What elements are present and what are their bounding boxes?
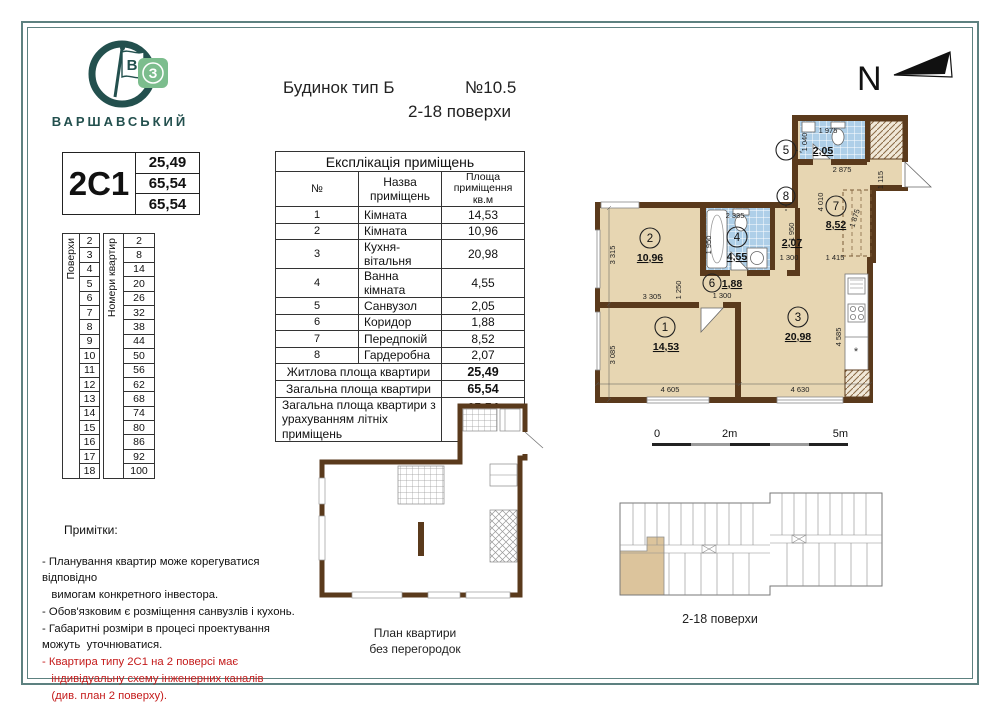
note-line: індивідуальну схему інженерних каналів bbox=[42, 671, 304, 688]
scale-five: 5m bbox=[833, 428, 848, 440]
table-row: 11 bbox=[80, 363, 99, 377]
table-row: 4 bbox=[80, 262, 99, 276]
room-area: 2,05 bbox=[442, 298, 525, 315]
apartment-number: 62 bbox=[124, 377, 154, 391]
scale-two: 2m bbox=[722, 428, 737, 440]
kitchen-shaft bbox=[845, 370, 870, 397]
fridge-symbol: * bbox=[854, 346, 859, 358]
caption-line: без перегородок bbox=[330, 641, 500, 657]
room-number: 4 bbox=[276, 269, 359, 298]
table-row: 18 bbox=[80, 464, 99, 478]
vent-shaft bbox=[870, 121, 903, 159]
explication-row: 8 Гардеробна 2,07 bbox=[276, 347, 525, 364]
table-row: 2 bbox=[124, 234, 154, 248]
table-row: 68 bbox=[124, 392, 154, 406]
dim-label: 1 415 bbox=[826, 253, 845, 262]
explication-row: 3 Кухня-вітальня 20,98 bbox=[276, 240, 525, 269]
table-row: 12 bbox=[80, 377, 99, 391]
explication-title: Експлікація приміщень bbox=[276, 152, 525, 172]
summary-label: Загальна площа квартири bbox=[276, 381, 442, 398]
note-line: відповідно bbox=[42, 570, 304, 587]
room-area: 20,98 bbox=[442, 240, 525, 269]
apartment-number: 14 bbox=[124, 262, 154, 276]
apartment-number: 20 bbox=[124, 277, 154, 291]
dim-label: 1 300 bbox=[780, 253, 799, 262]
brand-logo-icon: В З bbox=[78, 36, 188, 114]
building-type: Будинок тип Б bbox=[283, 78, 395, 98]
summary-value: 65,54 bbox=[442, 381, 525, 398]
building-overview-plan bbox=[607, 487, 963, 609]
scale-bar: 0 2m 5m bbox=[652, 428, 848, 450]
highlighted-apartment bbox=[620, 537, 664, 595]
dim-label: 3 085 bbox=[608, 346, 617, 365]
note-line: - Габаритні розміри в процесі проектуван… bbox=[42, 621, 304, 638]
room-area: 10,96 bbox=[442, 223, 525, 240]
explication-row: 7 Передпокій 8,52 bbox=[276, 331, 525, 348]
dim-label: 3 315 bbox=[608, 246, 617, 265]
apartment-numbers-label: Номери квартир bbox=[106, 238, 119, 317]
floor-number: 11 bbox=[80, 363, 99, 377]
dim-label: 1 950 bbox=[704, 236, 713, 255]
floor-number: 12 bbox=[80, 377, 99, 391]
plan-no-partitions-caption: План квартири без перегородок bbox=[330, 625, 500, 657]
room-name: Передпокій bbox=[359, 331, 442, 348]
floor-plan: * bbox=[595, 112, 940, 412]
table-row: 13 bbox=[80, 392, 99, 406]
floor-number: 13 bbox=[80, 392, 99, 406]
room-number: 7 bbox=[276, 331, 359, 348]
col-header-area-l3: кв.м bbox=[444, 195, 522, 206]
apartment-card-value: 65,54 bbox=[136, 194, 199, 214]
room-name: Кімната bbox=[359, 223, 442, 240]
floor-number: 15 bbox=[80, 421, 99, 435]
table-row: 20 bbox=[124, 277, 154, 291]
apartment-card: 2С1 25,4965,5465,54 bbox=[62, 152, 200, 215]
room-3-area: 20,98 bbox=[785, 331, 811, 343]
table-row: 44 bbox=[124, 334, 154, 348]
dim-label: 2 335 bbox=[726, 211, 745, 220]
apartment-numbers-table: Номери квартир 2814202632384450566268748… bbox=[103, 233, 155, 479]
north-label: N bbox=[857, 60, 882, 98]
floor-number: 6 bbox=[80, 291, 99, 305]
room-name: Кухня-вітальня bbox=[359, 240, 442, 269]
apartment-number: 86 bbox=[124, 435, 154, 449]
table-row: 26 bbox=[124, 291, 154, 305]
dim-label: 1 040 bbox=[800, 133, 809, 152]
room-3-number: 3 bbox=[795, 312, 801, 324]
apartment-number: 44 bbox=[124, 334, 154, 348]
plan-sheet: В З ВАРШАВСЬКИЙ Будинок тип Б №10.5 2-18… bbox=[0, 0, 1000, 706]
floor-number: 5 bbox=[80, 277, 99, 291]
room-name: Коридор bbox=[359, 314, 442, 331]
dim-label: 1 115 bbox=[876, 171, 885, 189]
room-area: 1,88 bbox=[442, 314, 525, 331]
floors-table-label-cell: Поверхи bbox=[63, 234, 80, 478]
table-row: 50 bbox=[124, 349, 154, 363]
room-4-number: 4 bbox=[734, 232, 741, 244]
building-number: №10.5 bbox=[465, 78, 516, 98]
table-row: 6 bbox=[80, 291, 99, 305]
apartment-number: 68 bbox=[124, 392, 154, 406]
north-arrow-icon: N bbox=[855, 42, 960, 104]
dim-label: 4 605 bbox=[661, 385, 680, 394]
room-4-area: 4,55 bbox=[727, 251, 748, 263]
floor-number: 9 bbox=[80, 334, 99, 348]
table-row: 100 bbox=[124, 464, 154, 478]
apartment-number: 56 bbox=[124, 363, 154, 377]
note-line: - Квартира типу 2С1 на 2 поверсі має bbox=[42, 654, 304, 671]
room-8-number: 8 bbox=[783, 191, 789, 203]
logo-letter-z: З bbox=[149, 65, 158, 81]
table-row: 62 bbox=[124, 377, 154, 391]
table-row: 10 bbox=[80, 349, 99, 363]
floor-number: 2 bbox=[80, 234, 99, 248]
note-line: (див. план 2 поверху). bbox=[42, 688, 304, 705]
dim-label: 4 585 bbox=[834, 328, 843, 347]
floors-range: 2-18 поверхи bbox=[408, 102, 511, 122]
logo-letter-b: В bbox=[127, 57, 138, 74]
table-row: 9 bbox=[80, 334, 99, 348]
floor-number: 16 bbox=[80, 435, 99, 449]
explication-summary-row: Житлова площа квартири 25,49 bbox=[276, 364, 525, 381]
col-header-name: Назва приміщень bbox=[359, 172, 442, 207]
floor-number: 17 bbox=[80, 449, 99, 463]
note-line: можуть уточнюватися. bbox=[42, 637, 304, 654]
apartment-numbers-label-cell: Номери квартир bbox=[104, 234, 124, 478]
table-row: 16 bbox=[80, 435, 99, 449]
apartment-card-values: 25,4965,5465,54 bbox=[136, 153, 199, 214]
dim-label: 4 010 bbox=[816, 193, 825, 212]
explication-row: 5 Санвузол 2,05 bbox=[276, 298, 525, 315]
floors-table: Поверхи 23456789101112131415161718 bbox=[62, 233, 100, 479]
table-row: 14 bbox=[124, 262, 154, 276]
explication-row: 6 Коридор 1,88 bbox=[276, 314, 525, 331]
notes: Примітки: - Планування квартир може коре… bbox=[42, 522, 304, 704]
explication-table: Експлікація приміщень № Назва приміщень … bbox=[275, 151, 525, 442]
room-1-area: 14,53 bbox=[653, 341, 679, 353]
table-row: 7 bbox=[80, 305, 99, 319]
apartment-number: 50 bbox=[124, 349, 154, 363]
room-name: Санвузол bbox=[359, 298, 442, 315]
scale-zero: 0 bbox=[654, 428, 660, 440]
room-5-area: 2,05 bbox=[813, 145, 834, 157]
room-area: 14,53 bbox=[442, 207, 525, 224]
table-row: 14 bbox=[80, 406, 99, 420]
notes-lines: - Планування квартир може корегуватися в… bbox=[42, 554, 304, 704]
col-header-area: Площа приміщення кв.м bbox=[442, 172, 525, 207]
apartment-code: 2С1 bbox=[63, 153, 136, 214]
table-row: 8 bbox=[124, 248, 154, 262]
table-row: 92 bbox=[124, 449, 154, 463]
room-number: 1 bbox=[276, 207, 359, 224]
plan-no-partitions bbox=[310, 402, 560, 622]
note-line: - Обов'язковим є розміщення санвузлів і … bbox=[42, 604, 304, 621]
room-5-number: 5 bbox=[783, 145, 789, 157]
brand-name: ВАРШАВСЬКИЙ bbox=[30, 114, 210, 129]
table-row: 8 bbox=[80, 320, 99, 334]
room-number: 8 bbox=[276, 347, 359, 364]
explication-summary-row: Загальна площа квартири 65,54 bbox=[276, 381, 525, 398]
floor-number: 3 bbox=[80, 248, 99, 262]
apartment-number: 100 bbox=[124, 464, 154, 478]
apartment-number: 38 bbox=[124, 320, 154, 334]
room-name: Гардеробна bbox=[359, 347, 442, 364]
floor-number: 8 bbox=[80, 320, 99, 334]
table-row: 38 bbox=[124, 320, 154, 334]
table-row: 5 bbox=[80, 277, 99, 291]
room-number: 6 bbox=[276, 314, 359, 331]
room-6-number: 6 bbox=[709, 278, 715, 290]
dim-label: 4 630 bbox=[791, 385, 810, 394]
overview-caption: 2-18 поверхи bbox=[630, 611, 810, 628]
table-row: 80 bbox=[124, 421, 154, 435]
room-area: 4,55 bbox=[442, 269, 525, 298]
scale-bar-line bbox=[652, 443, 848, 446]
dim-label: 1 250 bbox=[674, 281, 683, 300]
apartment-number: 74 bbox=[124, 406, 154, 420]
floors-table-label: Поверхи bbox=[65, 238, 78, 280]
explication-row: 4 Ванна кімната 4,55 bbox=[276, 269, 525, 298]
table-row: 86 bbox=[124, 435, 154, 449]
dim-label: 1 950 bbox=[787, 223, 796, 242]
apartment-card-value: 25,49 bbox=[136, 153, 199, 174]
floor-number: 18 bbox=[80, 464, 99, 478]
room-2-area: 10,96 bbox=[637, 252, 663, 264]
dim-label: 3 305 bbox=[643, 292, 662, 301]
dim-label: 1 975 bbox=[819, 126, 838, 135]
note-line: вимогам конкретного інвестора. bbox=[42, 587, 304, 604]
apartment-number: 2 bbox=[124, 234, 154, 248]
explication-row: 2 Кімната 10,96 bbox=[276, 223, 525, 240]
summary-label: Житлова площа квартири bbox=[276, 364, 442, 381]
apartment-number: 26 bbox=[124, 291, 154, 305]
room-number: 5 bbox=[276, 298, 359, 315]
note-line: - Планування квартир може корегуватися bbox=[42, 554, 304, 571]
explication-row: 1 Кімната 14,53 bbox=[276, 207, 525, 224]
summary-value: 25,49 bbox=[442, 364, 525, 381]
apartment-number: 8 bbox=[124, 248, 154, 262]
table-row: 56 bbox=[124, 363, 154, 377]
room-number: 3 bbox=[276, 240, 359, 269]
col-header-area-l2: приміщення bbox=[444, 183, 522, 194]
room-name: Кімната bbox=[359, 207, 442, 224]
table-row: 74 bbox=[124, 406, 154, 420]
table-row: 2 bbox=[80, 234, 99, 248]
dim-label: 2 875 bbox=[833, 165, 852, 174]
room-number: 2 bbox=[276, 223, 359, 240]
room-area: 2,07 bbox=[442, 347, 525, 364]
room-7-area: 8,52 bbox=[826, 219, 847, 231]
col-header-num: № bbox=[276, 172, 359, 207]
dim-label: 1 300 bbox=[713, 291, 732, 300]
table-row: 3 bbox=[80, 248, 99, 262]
table-row: 17 bbox=[80, 449, 99, 463]
floor-number: 7 bbox=[80, 305, 99, 319]
floor-number: 4 bbox=[80, 262, 99, 276]
room-name: Ванна кімната bbox=[359, 269, 442, 298]
apartment-card-value: 65,54 bbox=[136, 174, 199, 195]
caption-line: План квартири bbox=[330, 625, 500, 641]
room-6-area: 1,88 bbox=[722, 278, 743, 290]
apartment-number: 92 bbox=[124, 449, 154, 463]
table-row: 15 bbox=[80, 421, 99, 435]
room-7-number: 7 bbox=[833, 201, 839, 213]
floor-number: 10 bbox=[80, 349, 99, 363]
apartment-number: 32 bbox=[124, 305, 154, 319]
room-area: 8,52 bbox=[442, 331, 525, 348]
notes-title: Примітки: bbox=[64, 522, 304, 540]
room-2-number: 2 bbox=[647, 233, 653, 245]
table-row: 32 bbox=[124, 305, 154, 319]
floor-number: 14 bbox=[80, 406, 99, 420]
apartment-number: 80 bbox=[124, 421, 154, 435]
room-1-number: 1 bbox=[662, 322, 668, 334]
